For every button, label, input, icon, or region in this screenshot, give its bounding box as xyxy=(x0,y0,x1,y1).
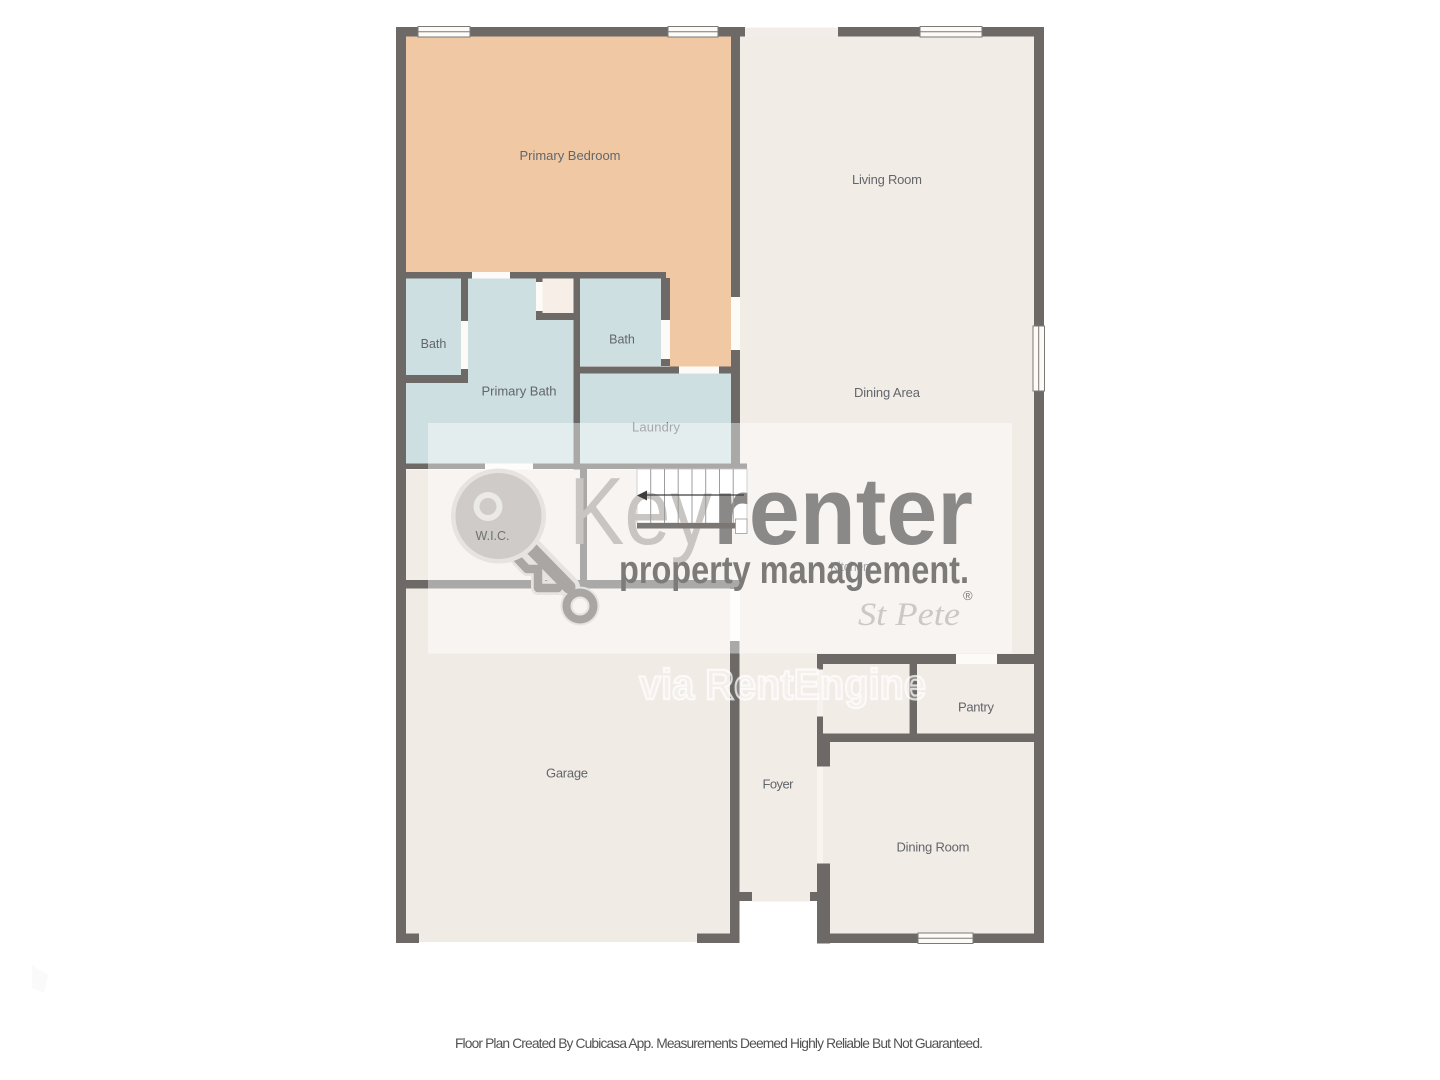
svg-text:via RentEngine: via RentEngine xyxy=(639,661,926,709)
svg-text:Primary Bedroom: Primary Bedroom xyxy=(520,148,621,163)
svg-text:Bath: Bath xyxy=(609,333,635,347)
svg-text:Garage: Garage xyxy=(546,766,588,781)
svg-text:Floor Plan Created By Cubicasa: Floor Plan Created By Cubicasa App. Meas… xyxy=(455,1036,983,1051)
svg-text:property management.: property management. xyxy=(619,549,969,592)
svg-text:Dining Room: Dining Room xyxy=(897,840,970,855)
svg-text:Pantry: Pantry xyxy=(958,700,995,715)
svg-text:Primary Bath: Primary Bath xyxy=(482,384,557,399)
svg-text:Living Room: Living Room xyxy=(852,172,922,187)
svg-text:®: ® xyxy=(963,588,973,603)
svg-text:St Pete: St Pete xyxy=(858,597,960,633)
svg-text:Foyer: Foyer xyxy=(763,777,795,792)
svg-text:Bath: Bath xyxy=(421,337,447,351)
svg-text:Dining Area: Dining Area xyxy=(854,385,921,400)
svg-text:W.I.C.: W.I.C. xyxy=(476,529,510,543)
